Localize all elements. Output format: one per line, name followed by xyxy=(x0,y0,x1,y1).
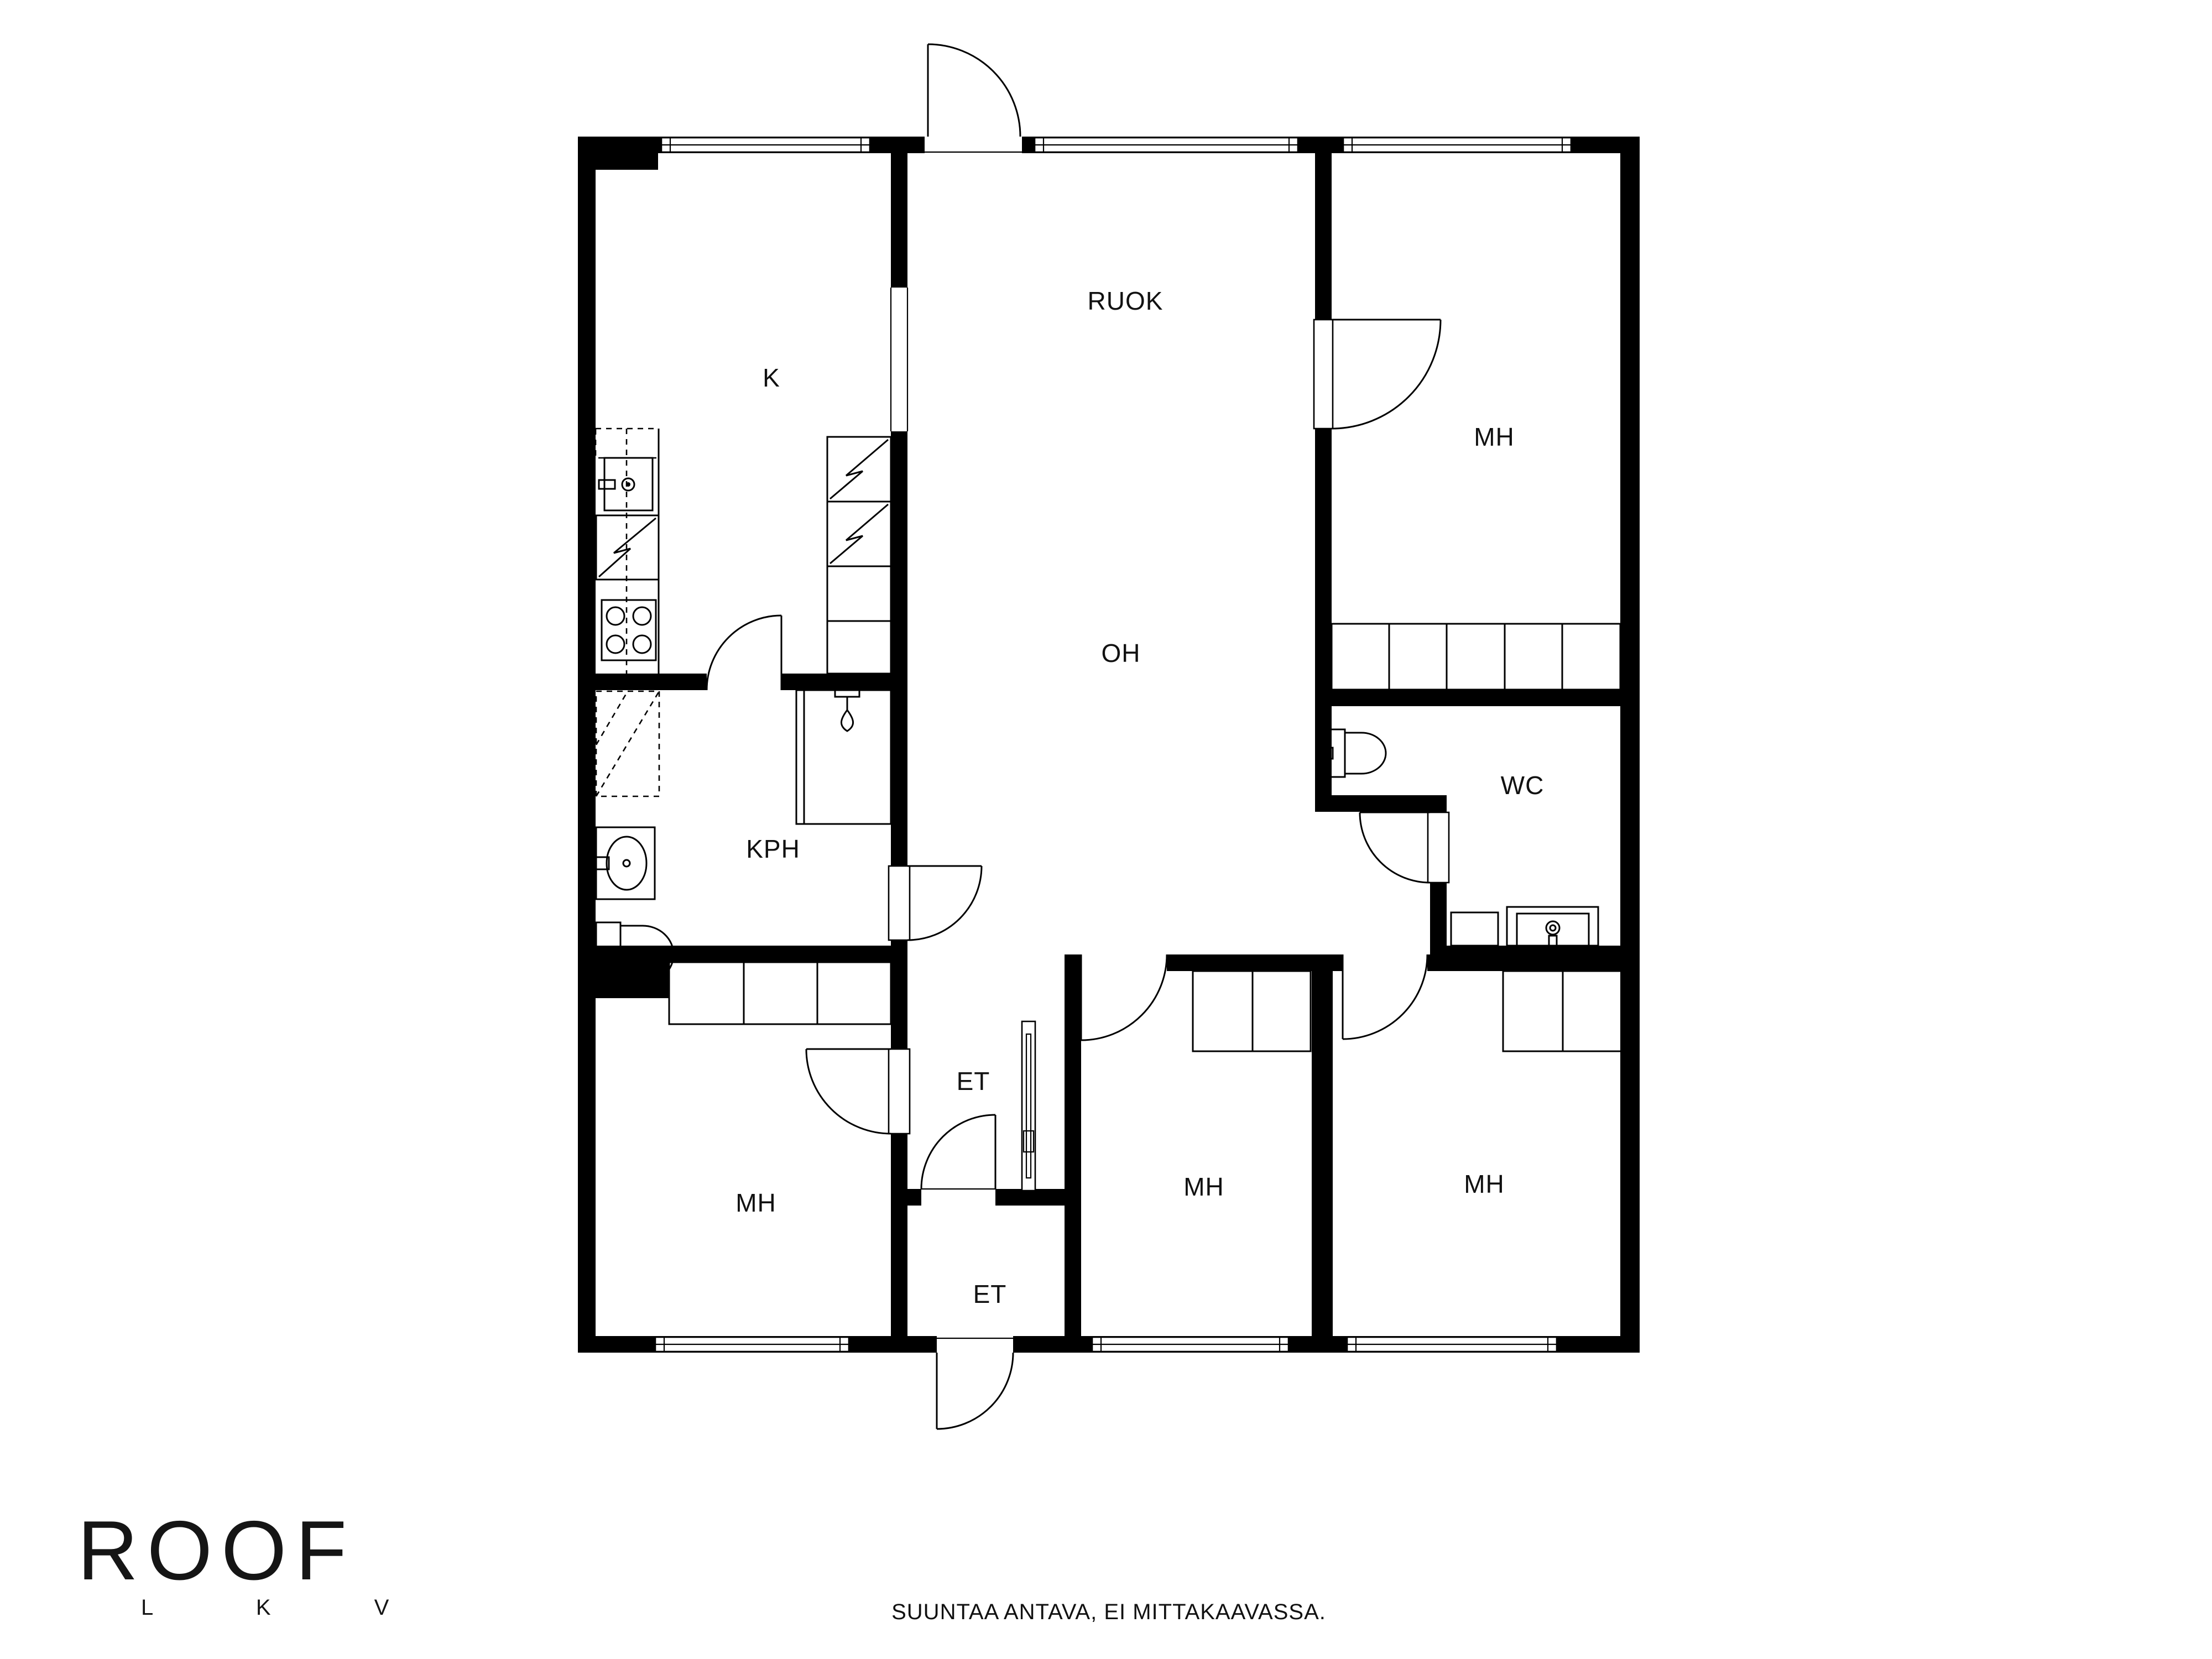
bathroom-sink-icon xyxy=(596,827,655,899)
room-label-wc: WC xyxy=(1501,771,1545,800)
logo-text: ROOF xyxy=(77,1504,356,1598)
window-bedroom-top-right xyxy=(1343,138,1571,152)
fridge-freezer-tower-icon xyxy=(827,437,891,674)
bedroom-bottom-right-door xyxy=(1343,952,1427,1039)
room-label-hall-lower: ET xyxy=(973,1280,1007,1308)
window-dining xyxy=(1035,138,1298,152)
washer-icon xyxy=(596,691,659,796)
closet-bedroom-top-right xyxy=(1332,624,1620,690)
room-label-living-room: OH xyxy=(1102,639,1141,667)
hall-door xyxy=(921,1115,995,1208)
bathroom-fixtures xyxy=(596,690,891,987)
room-label-dining: RUOK xyxy=(1088,286,1164,315)
wc-sink-icon xyxy=(1507,907,1598,946)
window-kitchen xyxy=(661,138,870,152)
kitchen-fixtures xyxy=(596,429,891,674)
room-label-bedroom-top-right: MH xyxy=(1474,422,1515,451)
kitchen-passthrough-opening xyxy=(891,288,907,431)
window-bedroom-bottom-right xyxy=(1347,1337,1557,1352)
balcony-door xyxy=(925,44,1022,155)
room-label-bathroom: KPH xyxy=(746,834,800,863)
wc-fixtures xyxy=(1321,729,1598,946)
wc-cabinet-icon xyxy=(1451,912,1498,946)
interior-walls xyxy=(596,153,1640,1336)
room-label-bedroom-bottom-left: MH xyxy=(735,1188,776,1217)
logo-subtext: L K V xyxy=(141,1595,437,1620)
shower-icon xyxy=(796,690,891,824)
corner-post xyxy=(578,137,658,170)
sliding-door xyxy=(1022,1021,1035,1191)
kitchen-door xyxy=(707,615,781,692)
stove-icon xyxy=(602,600,656,660)
floorplan-drawing: K RUOK MH OH WC KPH ET MH MH MH ET ROOF … xyxy=(0,0,2212,1659)
floorplan-page: K RUOK MH OH WC KPH ET MH MH MH ET ROOF … xyxy=(0,0,2212,1659)
closet-bedroom-bottom-right xyxy=(1503,971,1625,1051)
room-label-kitchen: K xyxy=(763,363,780,392)
entrance-door xyxy=(937,1335,1013,1429)
bedroom-top-right-door xyxy=(1314,320,1441,429)
window-bedroom-bottom-left xyxy=(655,1337,849,1352)
bedroom-bottom-left-door xyxy=(806,1049,910,1134)
kitchen-sink-icon xyxy=(599,458,653,510)
closet-bedroom-bottom-left xyxy=(669,962,891,1024)
footer-note: SUUNTAA ANTAVA, EI MITTAKAAVASSA. xyxy=(891,1600,1326,1624)
bathroom-door xyxy=(889,866,982,940)
fridge-icon xyxy=(596,515,659,580)
room-label-hall-upper: ET xyxy=(957,1067,990,1095)
brand-logo: ROOF L K V xyxy=(77,1504,437,1620)
room-label-bedroom-bottom-right: MH xyxy=(1464,1170,1505,1198)
bedroom-bottom-middle-door xyxy=(1081,952,1167,1040)
window-bedroom-bottom-middle xyxy=(1092,1337,1288,1352)
wc-door xyxy=(1360,812,1449,883)
room-label-bedroom-bottom-middle: MH xyxy=(1183,1172,1224,1201)
closet-bedroom-bottom-middle xyxy=(1193,971,1311,1051)
